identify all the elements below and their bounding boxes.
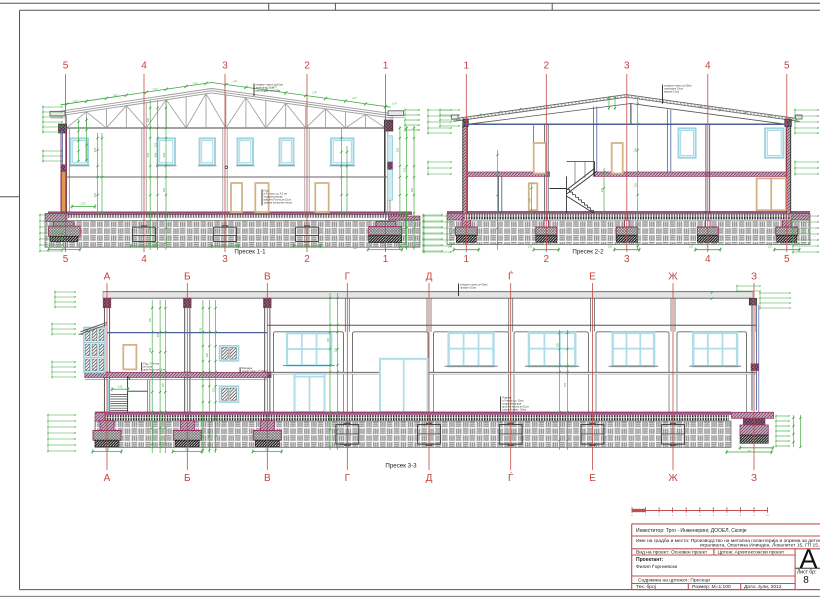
svg-text:Тех. број: Тех. број bbox=[636, 584, 656, 590]
svg-text:Пресек 3-3: Пресек 3-3 bbox=[385, 463, 417, 470]
svg-text:235: 235 bbox=[397, 147, 400, 152]
svg-text:А: А bbox=[104, 272, 111, 283]
svg-text:235: 235 bbox=[157, 332, 160, 337]
svg-text:Размер: М=1:100: Размер: М=1:100 bbox=[692, 584, 731, 590]
svg-text:Ж: Ж bbox=[668, 272, 678, 283]
svg-text:Цртеж: Архитектонски проект: Цртеж: Архитектонски проект bbox=[718, 550, 786, 556]
svg-text:235: 235 bbox=[403, 167, 406, 172]
svg-text:Ж: Ж bbox=[668, 473, 678, 484]
svg-text:Вид на проект: Основен проект: Вид на проект: Основен проект bbox=[636, 550, 708, 556]
svg-text:Г: Г bbox=[345, 473, 351, 484]
svg-text:4: 4 bbox=[141, 254, 147, 265]
svg-text:5: 5 bbox=[63, 254, 69, 265]
svg-text:120: 120 bbox=[353, 247, 358, 250]
svg-text:Ѓ: Ѓ bbox=[508, 270, 514, 283]
svg-text:2: 2 bbox=[304, 61, 310, 72]
svg-text:345: 345 bbox=[162, 152, 166, 157]
svg-text:1: 1 bbox=[383, 61, 389, 72]
svg-text:вакуум 10см: вакуум 10см bbox=[664, 90, 679, 94]
svg-text:2.20: 2.20 bbox=[81, 203, 86, 206]
svg-text:235: 235 bbox=[206, 352, 209, 357]
svg-text:Ѓ: Ѓ bbox=[508, 471, 514, 484]
svg-text:Инвеститор: Трго - Инженеринг,: Инвеститор: Трго - Инженеринг, ДООЕЛ, Ск… bbox=[636, 528, 747, 534]
svg-text:235: 235 bbox=[154, 142, 157, 147]
svg-text:2: 2 bbox=[304, 254, 310, 265]
svg-text:345: 345 bbox=[153, 152, 157, 157]
svg-text:2: 2 bbox=[544, 61, 550, 72]
svg-text:120: 120 bbox=[768, 246, 773, 249]
svg-text:235: 235 bbox=[94, 192, 97, 197]
svg-text:В: В bbox=[264, 473, 271, 484]
svg-text:Г: Г bbox=[345, 272, 351, 283]
svg-text:120: 120 bbox=[448, 246, 453, 249]
svg-text:арм.бетон д=12см: арм.бетон д=12см bbox=[143, 367, 165, 371]
svg-text:235: 235 bbox=[411, 187, 414, 192]
svg-text:8: 8 bbox=[803, 575, 809, 586]
svg-text:235: 235 bbox=[556, 342, 559, 347]
svg-text:1: 1 bbox=[383, 254, 389, 265]
svg-text:290: 290 bbox=[634, 147, 638, 152]
svg-text:А: А bbox=[104, 473, 111, 484]
svg-text:профил 10см: профил 10см bbox=[460, 286, 476, 290]
svg-text:Содржина на цртежот: Пресеци: Содржина на цртежот: Пресеци bbox=[638, 578, 710, 584]
svg-text:Дата: Јули, 2012: Дата: Јули, 2012 bbox=[744, 584, 782, 590]
svg-text:вакуум рав. д=0.05м: вакуум рав. д=0.05м bbox=[256, 89, 281, 93]
svg-text:120: 120 bbox=[265, 448, 270, 451]
svg-text:235: 235 bbox=[635, 182, 638, 187]
svg-text:235: 235 bbox=[327, 337, 330, 342]
svg-text:3: 3 bbox=[624, 61, 630, 72]
svg-text:235: 235 bbox=[212, 387, 215, 392]
svg-text:3: 3 bbox=[222, 254, 228, 265]
svg-text:Е: Е bbox=[589, 272, 596, 283]
svg-text:120: 120 bbox=[528, 246, 533, 249]
svg-text:Пресек 1-1: Пресек 1-1 bbox=[234, 249, 266, 256]
svg-text:Д: Д bbox=[426, 473, 433, 484]
svg-text:235: 235 bbox=[494, 172, 497, 177]
svg-text:120: 120 bbox=[747, 450, 752, 453]
svg-text:4: 4 bbox=[141, 61, 147, 72]
svg-text:Б: Б bbox=[184, 272, 191, 283]
svg-text:Пресек 2-2: Пресек 2-2 bbox=[572, 249, 604, 256]
svg-text:235: 235 bbox=[147, 117, 150, 122]
svg-text:1: 1 bbox=[464, 61, 470, 72]
svg-text:термо панел д=10см: термо панел д=10см bbox=[242, 369, 267, 373]
svg-text:120: 120 bbox=[62, 247, 67, 250]
svg-text:Д: Д bbox=[426, 272, 433, 283]
svg-text:4: 4 bbox=[705, 254, 711, 265]
svg-text:120: 120 bbox=[608, 246, 613, 249]
svg-text:тампон на крупен песок: тампон на крупен песок bbox=[264, 202, 293, 205]
svg-text:тампон-чакал, 30см: тампон-чакал, 30см bbox=[502, 407, 526, 411]
svg-text:2: 2 bbox=[544, 254, 550, 265]
svg-text:345: 345 bbox=[148, 347, 152, 352]
svg-text:235: 235 bbox=[200, 327, 203, 332]
svg-text:Е: Е bbox=[589, 473, 596, 484]
svg-text:235: 235 bbox=[163, 187, 166, 192]
svg-text:1: 1 bbox=[464, 254, 470, 265]
svg-text:235: 235 bbox=[94, 147, 97, 152]
svg-text:1.50: 1.50 bbox=[118, 385, 123, 388]
svg-text:5: 5 bbox=[63, 61, 69, 72]
svg-text:Проектант:: Проектант: bbox=[636, 557, 664, 563]
svg-text:В: В bbox=[264, 272, 271, 283]
svg-text:3: 3 bbox=[624, 254, 630, 265]
svg-text:235: 235 bbox=[601, 187, 604, 192]
svg-text:235: 235 bbox=[334, 347, 337, 352]
svg-text:235: 235 bbox=[564, 382, 567, 387]
svg-text:5: 5 bbox=[784, 61, 790, 72]
svg-text:3: 3 bbox=[222, 61, 228, 72]
svg-text:4: 4 bbox=[705, 61, 711, 72]
svg-text:120: 120 bbox=[689, 246, 694, 249]
svg-text:345: 345 bbox=[146, 152, 150, 157]
svg-text:120: 120 bbox=[105, 448, 110, 451]
svg-text:З: З bbox=[751, 272, 757, 283]
svg-text:5: 5 bbox=[784, 254, 790, 265]
svg-text:З: З bbox=[751, 473, 757, 484]
svg-text:Б: Б bbox=[184, 473, 191, 484]
svg-text:235: 235 bbox=[162, 382, 165, 387]
svg-text:120: 120 bbox=[185, 448, 190, 451]
svg-text:Филип Ѓоргиевски: Филип Ѓоргиевски bbox=[636, 563, 677, 570]
svg-text:235: 235 bbox=[149, 317, 152, 322]
svg-text:235: 235 bbox=[528, 197, 531, 202]
